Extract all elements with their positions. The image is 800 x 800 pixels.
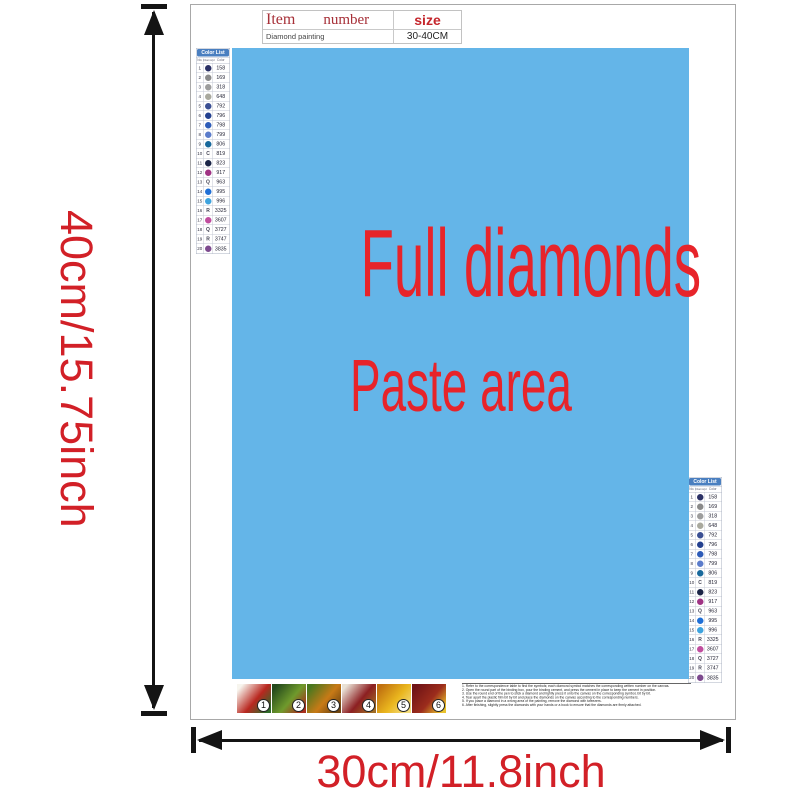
color-list-row: 14 995 — [197, 187, 230, 197]
dmc-code: 158 — [705, 494, 721, 500]
color-list-row: 8 799 — [197, 130, 230, 140]
color-list-row: 16 R 3325 — [197, 206, 230, 216]
size-value: 30-40CM — [407, 31, 448, 42]
dmc-code: 798 — [213, 122, 229, 128]
diamond-symbol-cell: R — [204, 235, 214, 244]
dmc-code: 819 — [213, 151, 229, 157]
color-list-row: 16 R 3325 — [689, 635, 722, 645]
color-number: 14 — [197, 187, 204, 196]
arrowhead-down-icon — [144, 685, 164, 710]
step-thumbnail: 4 — [342, 684, 376, 713]
height-dimension-arrow — [141, 4, 167, 716]
color-list-row: 10 C 819 — [689, 578, 722, 588]
color-list-row: 17 3607 — [689, 645, 722, 655]
color-list-row: 3 318 — [197, 83, 230, 93]
diamond-symbol-cell — [696, 645, 706, 654]
dmc-code: 158 — [213, 65, 229, 71]
col-color-label: Color — [705, 488, 721, 492]
color-list-row: 6 796 — [197, 111, 230, 121]
color-list-row: 1 158 — [689, 493, 722, 503]
item-info-table: Item number size Diamond painting 30-40C… — [262, 10, 462, 44]
color-number: 5 — [197, 102, 204, 111]
dmc-code: 996 — [213, 198, 229, 204]
color-list-row: 11 823 — [197, 159, 230, 169]
color-number: 13 — [689, 607, 696, 616]
step-number-badge: 6 — [432, 699, 445, 712]
instruction-step-thumbnails: 1 2 3 4 5 6 — [237, 684, 446, 713]
diamond-symbol-cell — [204, 102, 214, 111]
diamond-symbol-icon — [205, 141, 212, 148]
diamond-symbol-cell — [696, 626, 706, 635]
diamond-symbol-icon — [205, 188, 212, 195]
diamond-symbol-icon — [697, 541, 704, 548]
height-dimension-label: 40cm/15.75inch — [50, 210, 102, 540]
diamond-symbol-cell: Q — [204, 178, 214, 187]
diamond-symbol-cell — [696, 493, 706, 502]
color-number: 7 — [689, 550, 696, 559]
dmc-code: 917 — [705, 599, 721, 605]
color-number: 16 — [689, 635, 696, 644]
dmc-code: 963 — [213, 179, 229, 185]
diamond-symbol-icon — [205, 65, 212, 72]
diamond-symbol-icon: Q — [205, 226, 212, 233]
step-number-badge: 2 — [292, 699, 305, 712]
col-no-label: No. — [197, 59, 204, 63]
canvas-poster: Item number size Diamond painting 30-40C… — [190, 4, 736, 720]
dmc-code: 3835 — [705, 675, 721, 681]
dmc-code: 3325 — [213, 208, 229, 214]
color-list-row: 20 3835 — [197, 244, 230, 254]
color-number: 17 — [197, 216, 204, 225]
color-number: 19 — [689, 664, 696, 673]
diamond-symbol-icon — [697, 570, 704, 577]
color-list-title: Color List — [197, 49, 229, 57]
color-number: 18 — [689, 654, 696, 663]
step-thumbnail: 2 — [272, 684, 306, 713]
diamond-symbol-cell — [204, 83, 214, 92]
color-list-row: 15 996 — [689, 626, 722, 636]
color-list-row: 10 C 819 — [197, 149, 230, 159]
paste-area: Full diamonds Paste area — [232, 48, 689, 679]
diamond-symbol-icon: R — [205, 236, 212, 243]
step-thumbnail: 6 — [412, 684, 446, 713]
color-list-row: 19 R 3747 — [197, 235, 230, 245]
paste-area-subtitle: Paste area — [232, 349, 689, 423]
step-thumbnail: 1 — [237, 684, 271, 713]
dmc-code: 3747 — [705, 665, 721, 671]
color-number: 1 — [689, 493, 696, 502]
color-list-row: 12 917 — [689, 597, 722, 607]
number-header-label: number — [323, 12, 369, 29]
dmc-code: 3727 — [705, 656, 721, 662]
dmc-code: 963 — [705, 608, 721, 614]
color-list-row: 13 Q 963 — [197, 178, 230, 188]
diamond-symbol-icon — [697, 551, 704, 558]
color-list-row: 7 798 — [689, 550, 722, 560]
diamond-symbol-cell — [204, 197, 214, 206]
dmc-code: 819 — [705, 580, 721, 586]
color-list-row: 1 158 — [197, 64, 230, 74]
color-list-row: 9 806 — [197, 140, 230, 150]
diamond-symbol-icon — [697, 617, 704, 624]
diamond-symbol-cell: C — [204, 149, 214, 158]
instruction-text-block: 1. Refer to the correspondence table to … — [462, 683, 691, 717]
diamond-symbol-cell — [696, 616, 706, 625]
item-table-header-row: Item number size — [263, 11, 461, 30]
step-thumbnail: 3 — [307, 684, 341, 713]
dmc-code: 823 — [705, 589, 721, 595]
dmc-code: 318 — [213, 84, 229, 90]
diamond-symbol-icon — [697, 560, 704, 567]
diamond-symbol-icon — [205, 217, 212, 224]
diamond-symbol-icon — [697, 503, 704, 510]
color-list-row: 5 792 — [689, 531, 722, 541]
size-header-label: size — [414, 12, 440, 28]
diamond-symbol-icon — [697, 589, 704, 596]
dmc-code: 996 — [705, 627, 721, 633]
color-list-row: 2 169 — [197, 73, 230, 83]
color-list-row: 14 995 — [689, 616, 722, 626]
color-list-row: 8 799 — [689, 559, 722, 569]
color-list-row: 7 798 — [197, 121, 230, 131]
color-list-rows: 1 158 2 169 — [689, 493, 722, 683]
color-list-row: 2 169 — [689, 502, 722, 512]
color-list-rows: 1 158 2 169 — [197, 64, 230, 254]
dmc-code: 799 — [705, 561, 721, 567]
color-number: 15 — [197, 197, 204, 206]
step-number-badge: 1 — [257, 699, 270, 712]
diamond-symbol-cell — [696, 569, 706, 578]
diamond-symbol-icon — [205, 160, 212, 167]
arrow-end-cap — [141, 4, 167, 9]
dmc-code: 3325 — [705, 637, 721, 643]
diamond-symbol-icon: Q — [697, 608, 704, 615]
dmc-code: 796 — [705, 542, 721, 548]
color-list-left: Color List No. Diamond Color 1 158 — [196, 48, 230, 254]
diamond-symbol-icon: R — [205, 207, 212, 214]
color-list-row: 4 648 — [689, 521, 722, 531]
col-no-label: No. — [689, 488, 696, 492]
diamond-symbol-icon — [697, 627, 704, 634]
dmc-code: 3727 — [213, 227, 229, 233]
dmc-code: 799 — [213, 132, 229, 138]
color-number: 16 — [197, 206, 204, 215]
dmc-code: 806 — [213, 141, 229, 147]
color-list-row: 3 318 — [689, 512, 722, 522]
diamond-symbol-cell: R — [204, 206, 214, 215]
diamond-symbol-cell: Q — [204, 225, 214, 234]
arrow-shaft — [152, 12, 155, 708]
color-number: 1 — [197, 64, 204, 73]
paste-area-title: Full diamonds — [232, 216, 689, 312]
dmc-code: 796 — [213, 113, 229, 119]
item-table-data-row: Diamond painting 30-40CM — [263, 30, 461, 43]
diamond-symbol-cell — [204, 111, 214, 120]
diamond-symbol-icon — [205, 246, 212, 253]
color-number: 6 — [197, 111, 204, 120]
color-number: 5 — [689, 531, 696, 540]
diamond-symbol-cell: C — [696, 578, 706, 587]
dmc-code: 648 — [705, 523, 721, 529]
dmc-code: 169 — [213, 75, 229, 81]
color-number: 11 — [197, 159, 204, 168]
diamond-symbol-cell — [204, 216, 214, 225]
color-list-row: 12 917 — [197, 168, 230, 178]
diamond-symbol-cell — [204, 244, 214, 254]
diamond-symbol-icon — [205, 84, 212, 91]
diamond-symbol-icon — [205, 93, 212, 100]
color-number: 10 — [197, 149, 204, 158]
product-size-diagram: 40cm/15.75inch Item number size Diamond … — [0, 0, 800, 800]
color-list-row: 4 648 — [197, 92, 230, 102]
color-list-row: 9 806 — [689, 569, 722, 579]
dmc-code: 3747 — [213, 236, 229, 242]
color-list-row: 17 3607 — [197, 216, 230, 226]
diamond-symbol-icon: C — [205, 150, 212, 157]
diamond-symbol-cell — [696, 512, 706, 521]
diamond-symbol-cell: Q — [696, 607, 706, 616]
diamond-symbol-cell — [696, 673, 706, 683]
step-number-badge: 4 — [362, 699, 375, 712]
diamond-symbol-cell — [204, 140, 214, 149]
dmc-code: 3607 — [705, 646, 721, 652]
diamond-symbol-cell — [204, 130, 214, 139]
color-list-row: 20 3835 — [689, 673, 722, 683]
diamond-symbol-icon — [697, 532, 704, 539]
color-number: 3 — [197, 83, 204, 92]
diamond-symbol-cell — [696, 588, 706, 597]
color-number: 8 — [689, 559, 696, 568]
diamond-symbol-cell — [696, 531, 706, 540]
diamond-symbol-cell — [204, 73, 214, 82]
diamond-symbol-cell — [204, 187, 214, 196]
arrow-shaft — [199, 739, 723, 742]
step-number-badge: 5 — [397, 699, 410, 712]
diamond-symbol-cell — [204, 64, 214, 73]
color-number: 2 — [689, 502, 696, 511]
dmc-code: 823 — [213, 160, 229, 166]
dmc-code: 917 — [213, 170, 229, 176]
diamond-symbol-icon: Q — [205, 179, 212, 186]
dmc-code: 995 — [213, 189, 229, 195]
diamond-symbol-icon — [205, 198, 212, 205]
diamond-symbol-cell — [696, 597, 706, 606]
step-thumbnail: 5 — [377, 684, 411, 713]
color-number: 20 — [689, 673, 696, 683]
diamond-symbol-icon — [697, 598, 704, 605]
color-number: 11 — [689, 588, 696, 597]
dmc-code: 169 — [705, 504, 721, 510]
diamond-symbol-cell — [204, 92, 214, 101]
dmc-code: 318 — [705, 513, 721, 519]
diamond-symbol-icon — [205, 103, 212, 110]
color-list-row: 6 796 — [689, 540, 722, 550]
color-number: 12 — [197, 168, 204, 177]
diamond-symbol-icon — [697, 646, 704, 653]
color-list-row: 19 R 3747 — [689, 664, 722, 674]
dmc-code: 995 — [705, 618, 721, 624]
color-number: 15 — [689, 626, 696, 635]
color-list-row: 15 996 — [197, 197, 230, 207]
diamond-symbol-icon — [205, 122, 212, 129]
diamond-symbol-cell — [696, 502, 706, 511]
color-number: 6 — [689, 540, 696, 549]
diamond-symbol-icon — [205, 131, 212, 138]
dmc-code: 3607 — [213, 217, 229, 223]
color-number: 12 — [689, 597, 696, 606]
diamond-symbol-icon: C — [697, 579, 704, 586]
dmc-code: 792 — [213, 103, 229, 109]
color-list-row: 5 792 — [197, 102, 230, 112]
diamond-symbol-icon: R — [697, 636, 704, 643]
color-list-row: 11 823 — [689, 588, 722, 598]
diamond-symbol-icon: Q — [697, 655, 704, 662]
color-list-right: Color List No. Diamond Color 1 158 — [688, 477, 722, 683]
color-number: 3 — [689, 512, 696, 521]
color-number: 4 — [689, 521, 696, 530]
dmc-code: 806 — [705, 570, 721, 576]
color-number: 19 — [197, 235, 204, 244]
color-number: 9 — [689, 569, 696, 578]
color-number: 17 — [689, 645, 696, 654]
step-number-badge: 3 — [327, 699, 340, 712]
diamond-symbol-icon — [205, 169, 212, 176]
diamond-symbol-icon: R — [697, 665, 704, 672]
color-number: 20 — [197, 244, 204, 254]
col-diamond-label: Diamond — [204, 59, 214, 62]
color-number: 4 — [197, 92, 204, 101]
color-number: 13 — [197, 178, 204, 187]
item-header-label: Item — [266, 11, 295, 29]
diamond-symbol-icon — [697, 494, 704, 501]
color-list-row: 13 Q 963 — [689, 607, 722, 617]
color-number: 18 — [197, 225, 204, 234]
diamond-symbol-icon — [205, 112, 212, 119]
instruction-line: 6. After finishing, slightly press the d… — [462, 703, 690, 707]
diamond-symbol-icon — [697, 513, 704, 520]
diamond-symbol-cell — [696, 550, 706, 559]
diamond-symbol-cell — [696, 521, 706, 530]
diamond-symbol-cell: Q — [696, 654, 706, 663]
diamond-symbol-cell: R — [696, 664, 706, 673]
color-list-row: 18 Q 3727 — [197, 225, 230, 235]
diamond-symbol-icon — [697, 675, 704, 682]
diamond-symbol-cell — [696, 559, 706, 568]
width-dimension-label: 30cm/11.8inch — [191, 746, 731, 798]
diamond-symbol-cell — [204, 121, 214, 130]
dmc-code: 648 — [213, 94, 229, 100]
color-number: 10 — [689, 578, 696, 587]
color-number: 7 — [197, 121, 204, 130]
dmc-code: 792 — [705, 532, 721, 538]
diamond-symbol-cell — [204, 159, 214, 168]
dmc-code: 798 — [705, 551, 721, 557]
col-color-label: Color — [213, 59, 229, 63]
diamond-symbol-cell: R — [696, 635, 706, 644]
diamond-symbol-cell — [204, 168, 214, 177]
col-diamond-label: Diamond — [696, 488, 706, 491]
item-value: Diamond painting — [266, 32, 324, 41]
color-number: 2 — [197, 73, 204, 82]
color-number: 14 — [689, 616, 696, 625]
arrow-end-cap — [141, 711, 167, 716]
diamond-symbol-cell — [696, 540, 706, 549]
color-list-title: Color List — [689, 478, 721, 486]
diamond-symbol-icon — [205, 74, 212, 81]
color-number: 8 — [197, 130, 204, 139]
diamond-symbol-icon — [697, 522, 704, 529]
color-number: 9 — [197, 140, 204, 149]
color-list-row: 18 Q 3727 — [689, 654, 722, 664]
dmc-code: 3835 — [213, 246, 229, 252]
